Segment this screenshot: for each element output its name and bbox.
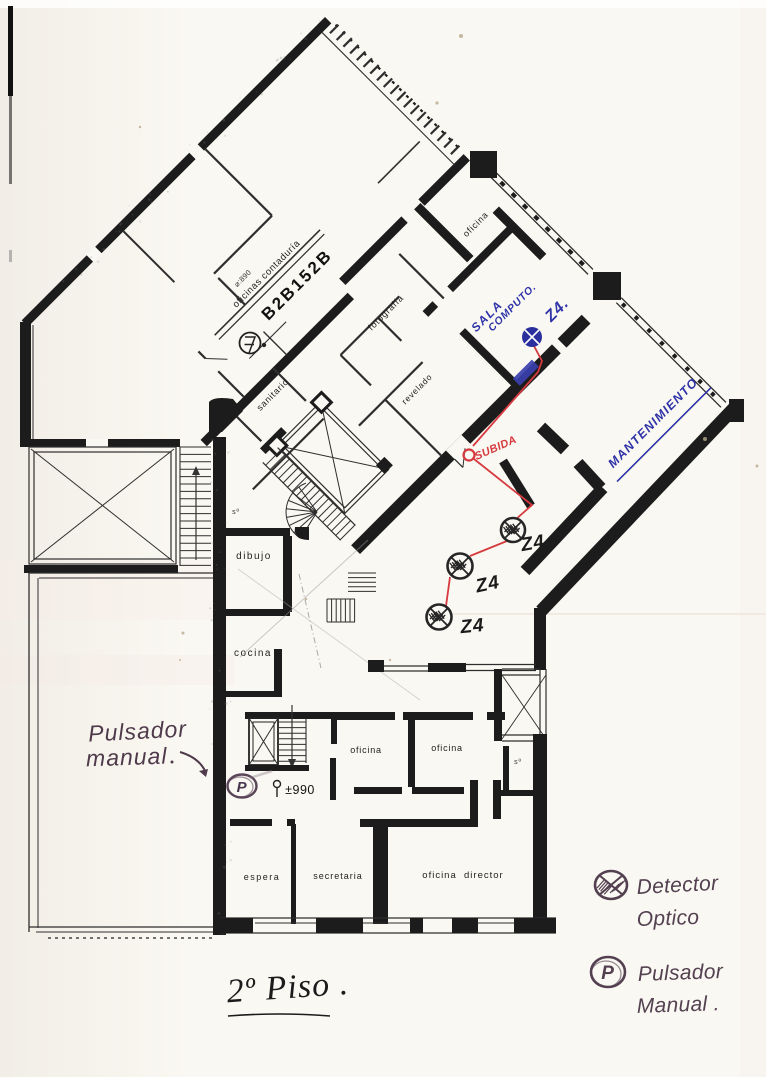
svg-text:Z4: Z4: [458, 615, 485, 639]
svg-text:Manual .: Manual .: [636, 992, 720, 1018]
svg-text:Pulsador: Pulsador: [88, 715, 188, 746]
svg-text:oficina director: oficina director: [422, 870, 503, 881]
svg-text:Z4: Z4: [518, 531, 546, 556]
svg-text:P: P: [237, 779, 248, 796]
svg-text:manual: manual: [86, 743, 168, 772]
svg-text:espera: espera: [244, 872, 281, 882]
svg-text:dibujo: dibujo: [236, 551, 272, 562]
svg-text:Pulsador: Pulsador: [637, 960, 724, 986]
svg-text:cocina: cocina: [234, 648, 272, 659]
svg-text:P: P: [601, 963, 614, 984]
svg-text:sº: sº: [514, 759, 522, 766]
svg-text:oficina: oficina: [431, 743, 463, 753]
svg-text:Detector: Detector: [636, 872, 720, 899]
svg-text:±990: ±990: [285, 783, 315, 797]
svg-text:Optico: Optico: [636, 906, 699, 931]
svg-text:secretaria: secretaria: [313, 871, 363, 881]
svg-text:sº: sº: [232, 509, 240, 516]
svg-text:oficina: oficina: [350, 745, 382, 755]
